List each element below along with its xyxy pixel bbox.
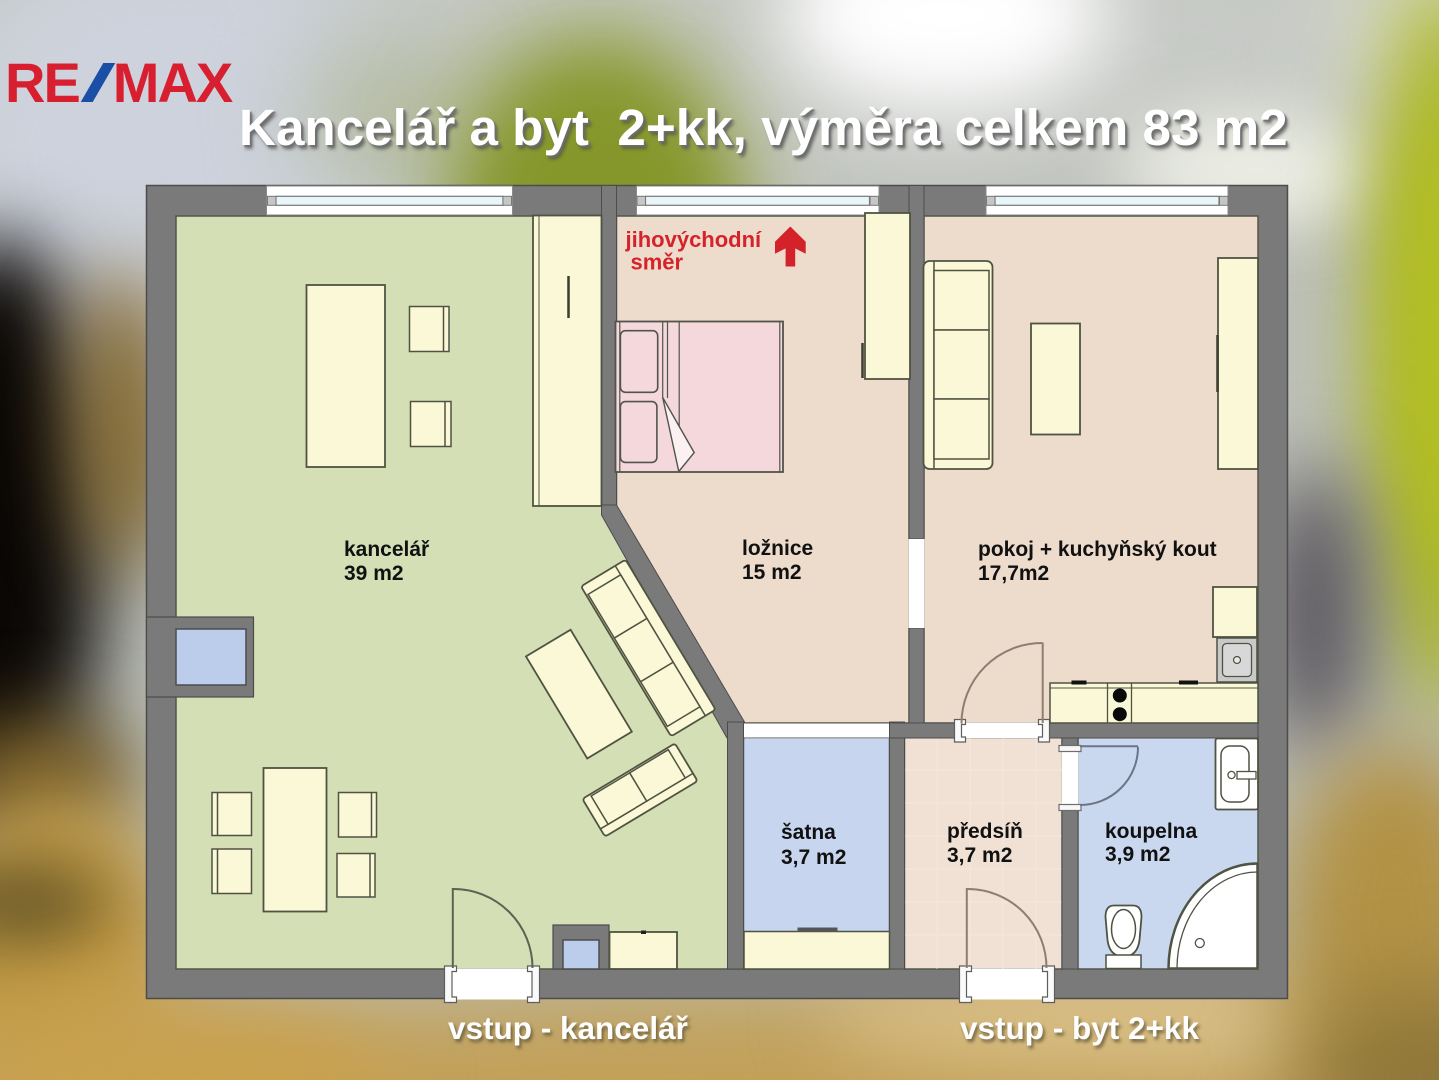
svg-text:koupelna: koupelna xyxy=(1105,820,1198,843)
svg-text:šatna: šatna xyxy=(781,821,836,844)
svg-text:směr: směr xyxy=(631,250,684,275)
svg-text:15 m2: 15 m2 xyxy=(742,561,802,584)
svg-text:ložnice: ložnice xyxy=(742,537,813,560)
svg-text:3,7 m2: 3,7 m2 xyxy=(947,844,1012,867)
svg-text:pokoj + kuchyňský kout: pokoj + kuchyňský kout xyxy=(978,538,1217,561)
svg-text:17,7m2: 17,7m2 xyxy=(978,562,1049,585)
svg-text:předsíň: předsíň xyxy=(947,820,1023,843)
svg-text:kancelář: kancelář xyxy=(344,538,430,561)
svg-text:3,9 m2: 3,9 m2 xyxy=(1105,843,1170,866)
svg-text:3,7 m2: 3,7 m2 xyxy=(781,846,846,869)
svg-text:39 m2: 39 m2 xyxy=(344,562,404,585)
svg-text:jihovýchodní: jihovýchodní xyxy=(625,227,763,252)
